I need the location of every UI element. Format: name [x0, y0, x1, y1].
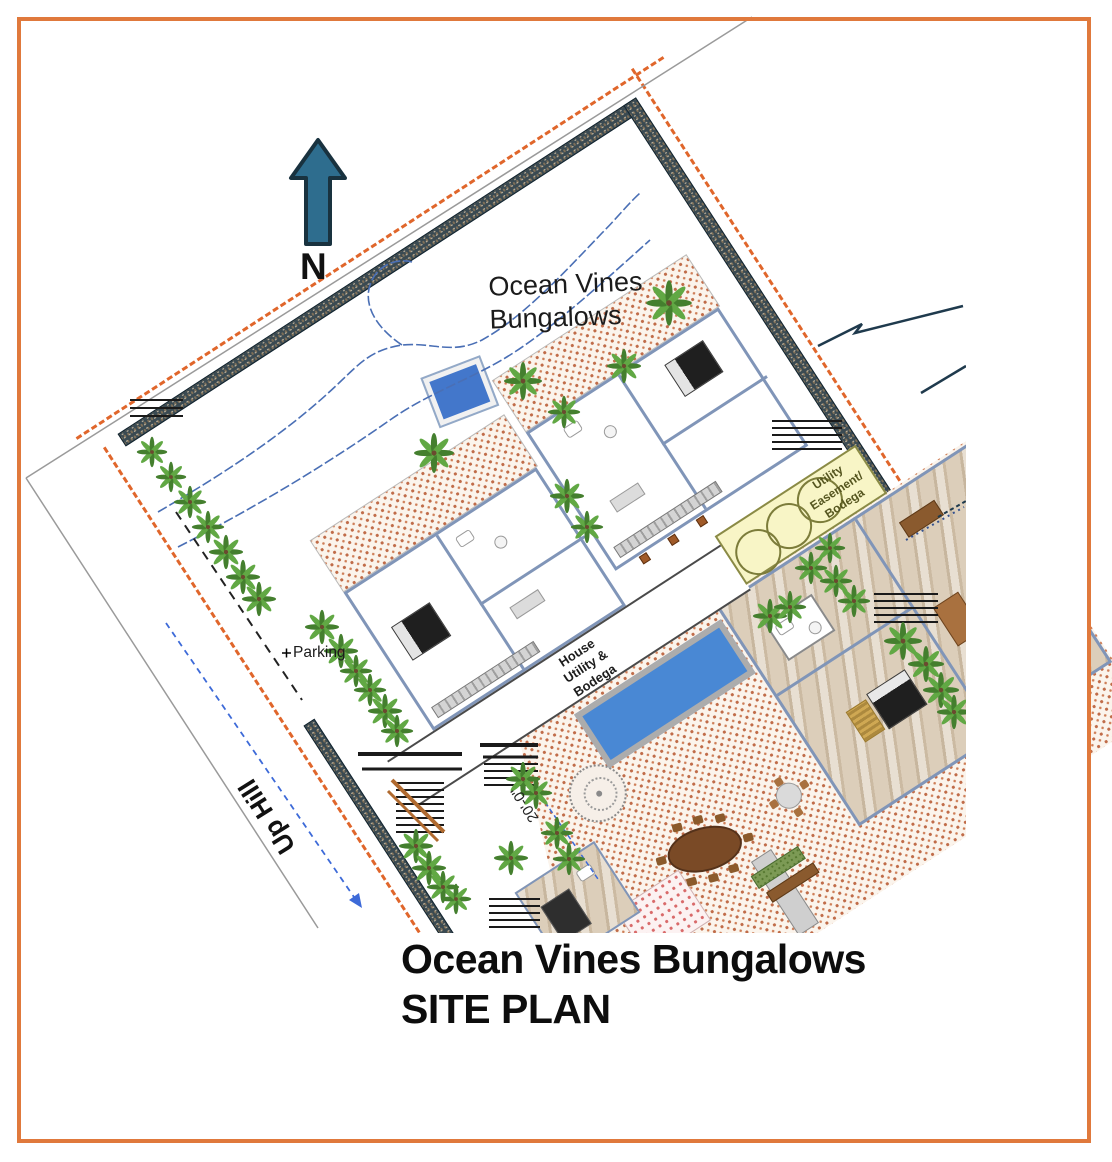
house-bathroom [765, 594, 836, 661]
bed [391, 602, 451, 661]
bed [664, 340, 723, 397]
site-name-label: Ocean Vines Bungalows [488, 265, 644, 336]
small-pool [423, 358, 497, 426]
title-line-1: Ocean Vines Bungalows [401, 934, 866, 984]
north-label: N [300, 246, 327, 288]
uphill-label: Up Hill [229, 769, 304, 863]
title-line-2: SITE PLAN [401, 984, 866, 1034]
parking-label: Parking [293, 644, 346, 662]
title-block: Ocean Vines Bungalows SITE PLAN [401, 934, 866, 1034]
site-plan-page: House Utility & Bodega Utility Easement/… [0, 0, 1112, 1162]
